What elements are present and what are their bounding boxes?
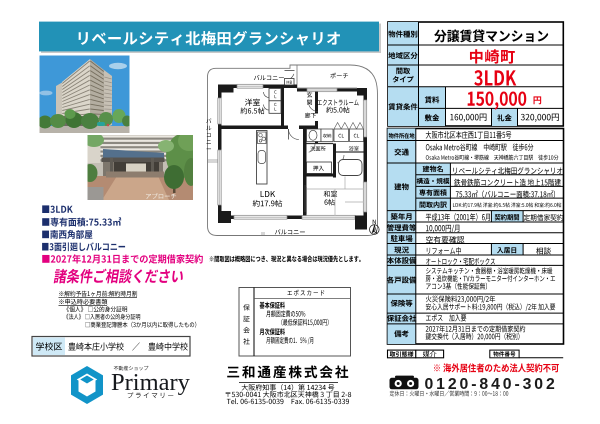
svg-text:Primary: Primary — [111, 369, 191, 396]
svg-text:0120-840-302: 0120-840-302 — [425, 376, 558, 393]
